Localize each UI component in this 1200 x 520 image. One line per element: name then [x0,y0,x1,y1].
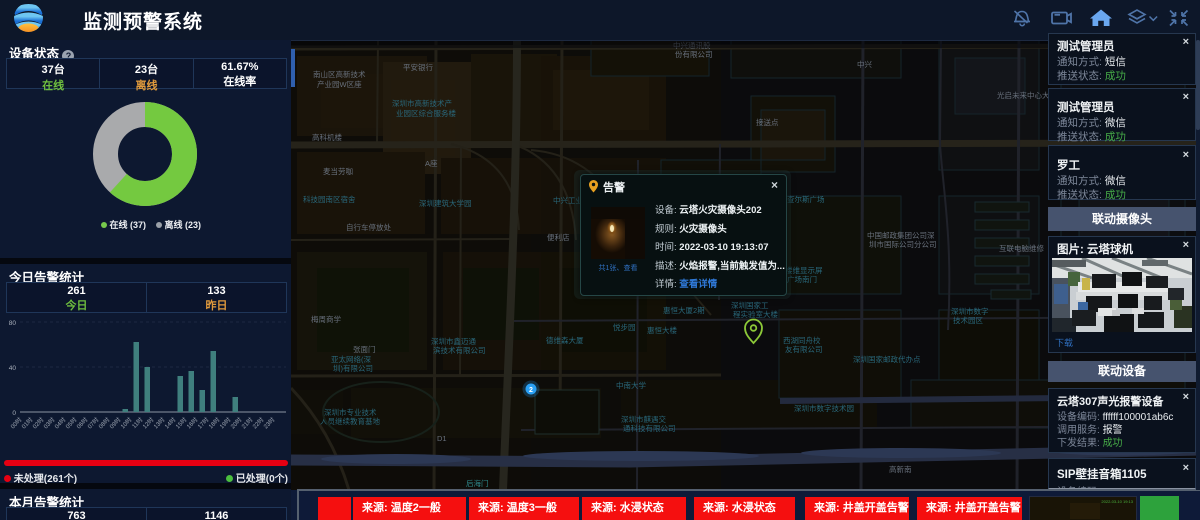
svg-text:40: 40 [9,365,17,372]
svg-text:深圳国家工: 深圳国家工 [731,300,769,310]
svg-text:德维森大厦: 德维森大厦 [546,335,584,345]
svg-text:高科机楼: 高科机楼 [312,132,342,142]
svg-text:友有限公司: 友有限公司 [785,344,823,354]
svg-text:接送点: 接送点 [756,117,779,127]
svg-text:深圳市高新技术产: 深圳市高新技术产 [392,98,452,108]
svg-text:圳)有限公司: 圳)有限公司 [333,363,373,373]
svg-text:02时: 02时 [31,416,46,431]
svg-text:80: 80 [9,320,17,327]
svg-text:2: 2 [529,387,533,394]
svg-text:梅周商学: 梅周商学 [311,314,341,324]
svg-text:后海门: 后海门 [466,478,489,488]
svg-text:15时: 15时 [174,416,189,431]
svg-text:10时: 10时 [119,416,134,431]
svg-text:D1: D1 [437,434,447,443]
svg-text:麦当劳咖: 麦当劳咖 [323,166,353,176]
svg-text:份有限公司: 份有限公司 [675,49,713,59]
svg-text:中兴: 中兴 [857,59,872,69]
svg-text:程实验室大楼: 程实验室大楼 [733,309,778,319]
svg-text:产业园W区座: 产业园W区座 [317,79,362,89]
svg-text:14时: 14时 [163,416,178,431]
svg-text:22时: 22时 [251,416,266,431]
svg-text:深圳建筑大学园: 深圳建筑大学园 [419,198,472,208]
svg-text:09时: 09时 [108,416,123,431]
svg-text:A座: A座 [425,158,438,168]
svg-text:01时: 01时 [20,416,35,431]
svg-text:中国邮政集团公司深: 中国邮政集团公司深 [867,230,935,240]
svg-text:23时: 23时 [262,416,277,431]
svg-text:滨技术有限公司: 滨技术有限公司 [433,345,486,355]
svg-text:00时: 00时 [9,416,24,431]
svg-text:平安银行: 平安银行 [403,62,433,72]
svg-text:17时: 17时 [196,416,211,431]
svg-text:圳市国际公司分公司: 圳市国际公司分公司 [869,239,937,249]
svg-text:0: 0 [12,410,16,417]
svg-text:技术园区: 技术园区 [953,315,983,325]
svg-text:21时: 21时 [240,416,255,431]
svg-text:08时: 08时 [97,416,112,431]
svg-text:07时: 07时 [86,416,101,431]
svg-text:12时: 12时 [141,416,156,431]
svg-text:查尔斯广场: 查尔斯广场 [787,194,825,204]
svg-text:亚太网络(深: 亚太网络(深 [331,354,371,364]
svg-text:业园区综合服务楼: 业园区综合服务楼 [396,108,456,118]
svg-text:张面门: 张面门 [353,345,376,354]
svg-text:中南大学: 中南大学 [616,380,646,390]
svg-text:互联电脑维修: 互联电脑维修 [999,243,1044,253]
svg-text:广场南门: 广场南门 [787,274,817,284]
svg-text:南山区高新技术: 南山区高新技术 [313,69,366,79]
svg-text:深圳市数字技术园: 深圳市数字技术园 [794,403,854,413]
svg-text:深圳市麒遇交: 深圳市麒遇交 [621,414,666,424]
svg-text:11时: 11时 [130,416,144,430]
svg-text:06时: 06时 [75,416,90,431]
svg-text:13时: 13时 [152,416,167,431]
svg-text:自行车停放处: 自行车停放处 [346,222,391,232]
svg-text:深圳国家邮政代办点: 深圳国家邮政代办点 [853,354,921,364]
svg-text:西湖同舟校: 西湖同舟校 [783,335,821,345]
svg-text:便利店: 便利店 [547,232,570,242]
svg-text:19时: 19时 [218,416,233,431]
svg-text:惠恒大厦2期: 惠恒大厦2期 [663,305,705,315]
svg-text:通科技有限公司: 通科技有限公司 [623,423,676,433]
svg-text:科技园南区宿舍: 科技园南区宿舍 [303,194,356,204]
svg-text:18时: 18时 [207,416,222,431]
svg-text:深圳市专业技术: 深圳市专业技术 [324,407,377,417]
svg-text:16时: 16时 [185,416,200,431]
svg-text:03时: 03时 [42,416,57,431]
svg-text:深圳市鑫迈通: 深圳市鑫迈通 [431,336,476,346]
svg-text:深圳市数字: 深圳市数字 [951,306,989,316]
svg-text:04时: 04时 [53,416,68,431]
svg-text:高新南: 高新南 [889,464,912,474]
svg-text:悦步园: 悦步园 [613,322,636,332]
svg-text:05时: 05时 [64,416,79,431]
svg-text:20时: 20时 [229,416,244,431]
svg-text:惠恒大楼: 惠恒大楼 [647,325,677,335]
